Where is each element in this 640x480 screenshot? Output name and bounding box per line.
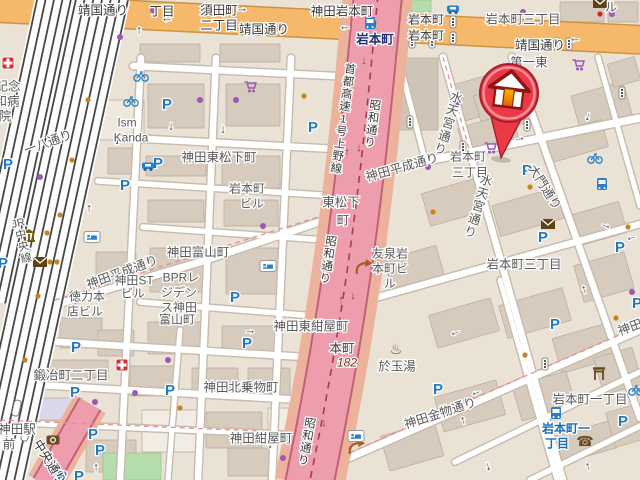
public-phone-icon: ☎ xyxy=(576,433,593,449)
map-label: 神田北乗物町 xyxy=(203,381,278,395)
svg-text:和: 和 xyxy=(367,111,380,125)
bus-stop-icon xyxy=(597,178,607,190)
parking-icon: P xyxy=(88,426,98,443)
parking-icon: P xyxy=(615,239,625,256)
parking-icon: P xyxy=(120,177,130,194)
shop-dot-icon xyxy=(625,224,630,229)
map-label: ル xyxy=(605,1,618,15)
clinic-dot-icon xyxy=(37,174,43,180)
map-label: 岩本町三丁目 xyxy=(485,12,560,27)
building xyxy=(140,44,200,62)
oneway-arrow: ↑ xyxy=(86,201,92,215)
shop-dot-icon xyxy=(47,259,52,264)
shop-dot-icon xyxy=(527,184,532,189)
hospital-icon xyxy=(2,57,14,69)
parking-icon: P xyxy=(153,155,163,172)
map-label: 須田町 xyxy=(200,4,238,18)
clinic-dot-icon xyxy=(233,97,239,103)
shop-dot-icon xyxy=(177,405,182,410)
shop-dot-icon xyxy=(57,212,62,217)
map-label: 岩本町一丁目 xyxy=(552,392,627,407)
building xyxy=(220,44,280,62)
map-label: 神田東紺屋町 xyxy=(273,319,348,334)
map-label: 岩本町一 xyxy=(541,420,590,435)
map-label: 182 xyxy=(337,355,357,369)
parking-icon: P xyxy=(74,468,84,480)
clinic-dot-icon xyxy=(260,223,266,229)
svg-text:昭: 昭 xyxy=(369,98,382,112)
shop-dot-icon xyxy=(522,352,527,357)
parking-icon: P xyxy=(95,442,105,459)
svg-text:り: り xyxy=(363,136,376,150)
parking-icon: P xyxy=(433,381,443,398)
svg-text:通: 通 xyxy=(365,123,379,138)
oneway-arrow: ↑ xyxy=(93,460,99,474)
map-label: 丁目 xyxy=(149,5,174,19)
parking-icon: P xyxy=(308,119,318,136)
hotel-icon xyxy=(84,232,100,243)
parking-icon: P xyxy=(550,316,560,333)
highway-direction-arrow: ↑ xyxy=(338,294,344,306)
oneway-arrow: ↓ xyxy=(220,122,226,136)
shop-dot-icon xyxy=(85,97,90,102)
map-label: 本町ビ xyxy=(372,261,408,275)
map-label: 記念 xyxy=(0,79,21,94)
building xyxy=(148,200,204,222)
map-label: 神田駅 xyxy=(0,423,36,437)
clinic-dot-icon xyxy=(132,390,138,396)
shop-dot-icon xyxy=(35,293,40,298)
map-canvas[interactable]: ↑↓↑↓↑↓↑↓←→←←↑↓↓→→↑←←↑↓↑←→↑↓↓↑PPPPPPPPPPP… xyxy=(0,0,640,480)
hotel-icon xyxy=(260,261,276,272)
oneway-arrow: ← xyxy=(339,19,352,33)
map-label: 徳力本 xyxy=(69,288,105,303)
map-label: 於玉湯 xyxy=(378,359,416,374)
post-office-icon xyxy=(33,257,47,267)
parking-icon: P xyxy=(162,96,172,113)
map-label: BPRレ xyxy=(163,270,200,284)
map-label: 神田紺屋町 xyxy=(230,431,293,446)
map-label: 前 xyxy=(3,437,16,452)
parking-icon: P xyxy=(242,335,252,352)
parking-icon: P xyxy=(70,384,80,401)
svg-text:昭: 昭 xyxy=(324,234,337,249)
map-label: 店ビル xyxy=(67,304,103,318)
parking-icon: P xyxy=(230,289,240,306)
parking-icon: P xyxy=(538,229,548,246)
map-label: 本町 xyxy=(329,342,354,356)
map-label: 岩本町三丁目 xyxy=(486,257,561,272)
svg-text:都: 都 xyxy=(342,75,356,90)
svg-text:和: 和 xyxy=(301,429,315,444)
hotel-icon xyxy=(348,431,364,442)
highway-direction-arrow: ↓ xyxy=(361,55,367,67)
svg-text:り: り xyxy=(297,453,311,468)
map-label: 岩本町 xyxy=(229,180,265,195)
map-label: 友泉岩 xyxy=(372,245,408,260)
parking-icon: P xyxy=(71,339,81,356)
bus-stop-icon xyxy=(365,17,375,29)
parking-icon: P xyxy=(3,156,13,173)
map-label: 神田岩本町 xyxy=(311,4,374,19)
map-label: 岩本町 xyxy=(408,27,444,42)
map-label: 丁目 xyxy=(545,436,569,450)
map-label: 神田富山町 xyxy=(167,245,230,260)
shop-dot-icon xyxy=(301,93,306,98)
map-label: Kanda xyxy=(114,130,149,144)
svg-text:号: 号 xyxy=(335,124,348,138)
shop-dot-icon xyxy=(69,157,74,162)
building xyxy=(228,448,274,476)
post-office-icon xyxy=(541,219,555,229)
highway-direction-arrow: ↓ xyxy=(321,417,327,429)
clinic-dot-icon xyxy=(165,357,171,363)
parking-icon: P xyxy=(632,295,640,312)
bathhouse-icon: ♨ xyxy=(390,341,403,357)
map-label: 町 xyxy=(337,214,350,228)
svg-text:上: 上 xyxy=(333,137,346,151)
highway-direction-arrow: ↓ xyxy=(356,142,362,154)
map-label: Ism xyxy=(117,115,136,129)
bus-stop-icon xyxy=(551,407,561,419)
clinic-dot-icon xyxy=(92,399,98,405)
map-label: 鍛冶町二丁目 xyxy=(33,369,108,383)
map-label: 院 xyxy=(0,110,12,124)
bank-icon xyxy=(47,436,60,445)
parking-icon: P xyxy=(618,413,628,430)
svg-text:速: 速 xyxy=(338,100,352,115)
clinic-dot-icon xyxy=(280,455,286,461)
poi-dot-icon xyxy=(597,11,602,16)
clinic-dot-icon xyxy=(117,34,123,40)
oneway-arrow: ← xyxy=(569,31,582,45)
oneway-arrow: ↓ xyxy=(168,119,174,133)
map-label: 岩本町 xyxy=(408,11,444,26)
parking-icon: P xyxy=(165,382,175,399)
map-label: 靖国通り xyxy=(239,23,289,37)
map-label: ル xyxy=(384,276,396,290)
map-label: 靖国通り xyxy=(78,4,128,18)
map-label: 神田東松下町 xyxy=(181,151,256,165)
shop-dot-icon xyxy=(22,357,27,362)
clinic-dot-icon xyxy=(629,289,635,295)
map-label: 和病 xyxy=(0,94,20,109)
shop-dot-icon xyxy=(613,315,618,320)
map-label: 東松下 xyxy=(322,196,360,210)
oneway-arrow: ↑ xyxy=(136,23,142,37)
svg-text:和: 和 xyxy=(322,247,335,262)
map-label: 靖国通り xyxy=(515,39,565,53)
highway-direction-arrow: ↓ xyxy=(350,290,356,302)
shop-dot-icon xyxy=(430,209,435,214)
map-label: 神田ST xyxy=(114,273,154,287)
park xyxy=(103,453,161,480)
svg-text:野: 野 xyxy=(331,149,345,164)
building xyxy=(148,84,204,128)
parking-icon: P xyxy=(0,255,8,272)
highway-direction-arrow: ↑ xyxy=(344,146,350,158)
shop-dot-icon xyxy=(54,259,59,264)
clinic-dot-icon xyxy=(197,97,203,103)
map-label: 富山町 xyxy=(159,311,195,326)
map-label: 岩本町 xyxy=(450,148,486,163)
map-label: ビル xyxy=(240,196,264,210)
map-label: 二丁目 xyxy=(200,19,238,33)
shop-dot-icon xyxy=(44,230,49,235)
hospital-icon xyxy=(116,359,128,371)
svg-text:昭: 昭 xyxy=(303,416,317,431)
map-viewport[interactable]: ↑↓↑↓↑↓↑↓←→←←↑↓↓→→↑←←↑↓↑←→↑↓↓↑PPPPPPPPPPP… xyxy=(0,0,640,480)
map-label: ビル xyxy=(121,286,145,300)
svg-text:り: り xyxy=(319,271,332,286)
map-label: ジデン xyxy=(161,284,197,299)
map-label: 岩本町 xyxy=(355,32,394,47)
